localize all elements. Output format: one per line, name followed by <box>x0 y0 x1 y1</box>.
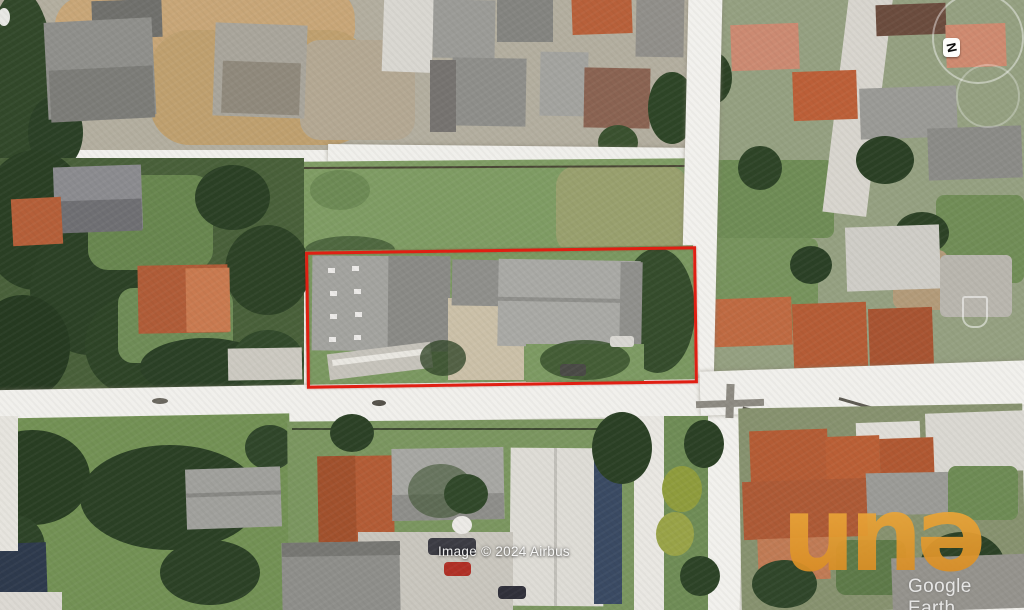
path-light <box>0 592 62 610</box>
car-dark <box>498 586 526 599</box>
tree <box>592 412 652 484</box>
roof-highlight <box>185 268 230 333</box>
house-roof-orange <box>749 429 829 484</box>
building-roof-section <box>49 65 156 122</box>
building-roof <box>497 0 553 42</box>
tree <box>444 474 488 514</box>
building-roof <box>635 0 684 57</box>
compass-ring-small <box>956 64 1020 128</box>
house-roof-orange <box>792 70 858 121</box>
building-roof <box>432 0 495 59</box>
tree <box>680 556 720 596</box>
tree <box>160 540 260 605</box>
tree <box>684 420 724 468</box>
tree-olive <box>656 512 694 556</box>
intersection-mark <box>725 384 734 418</box>
house-roof-gray <box>185 466 282 529</box>
tree <box>856 136 914 184</box>
building-section <box>221 61 301 116</box>
una-logo: unə <box>778 492 1008 576</box>
car-red <box>444 562 471 576</box>
dry-grass-patch <box>556 166 688 254</box>
tree-cluster <box>225 225 310 315</box>
grass-shade <box>310 170 370 210</box>
una-logo-text: unə <box>782 492 982 576</box>
building-roof <box>451 57 526 126</box>
satellite-map[interactable]: N Image © 2024 Airbus unə Google Earth <box>0 0 1024 610</box>
tree <box>330 414 374 452</box>
roof-orange-small <box>11 197 63 247</box>
building-white-roof <box>509 448 604 607</box>
building-roof <box>539 52 588 117</box>
building-roof <box>382 0 435 73</box>
house-roof-white <box>925 410 1024 473</box>
house-roof-white <box>845 224 941 291</box>
street-debris <box>372 400 386 406</box>
imagery-credit: Image © 2024 Airbus <box>438 544 570 559</box>
roof-ridge <box>554 448 557 606</box>
dome-white <box>452 516 472 534</box>
roof-orange <box>571 0 632 35</box>
roof-brown <box>583 67 650 128</box>
building-roof-section <box>55 199 142 234</box>
house-roof-orange <box>868 307 934 369</box>
street-debris <box>152 398 168 404</box>
google-earth-wordmark: Google Earth <box>908 576 1024 610</box>
shield-icon <box>962 296 988 328</box>
house-roof-orange <box>709 297 793 348</box>
roof-edge <box>282 541 400 557</box>
tree-olive <box>662 466 702 512</box>
north-label: N <box>944 42 959 54</box>
path-light <box>0 416 18 551</box>
compass-north-button[interactable]: N <box>943 38 960 57</box>
roof-facet <box>317 456 357 547</box>
tree <box>790 246 832 284</box>
property-outline <box>305 246 698 388</box>
house-roof-gray <box>927 125 1023 180</box>
tree <box>738 146 782 190</box>
driveway <box>228 347 303 380</box>
building-roof <box>430 60 456 132</box>
tree <box>195 165 270 230</box>
house-roof-salmon <box>730 23 800 71</box>
house-roof-orange <box>792 302 868 369</box>
